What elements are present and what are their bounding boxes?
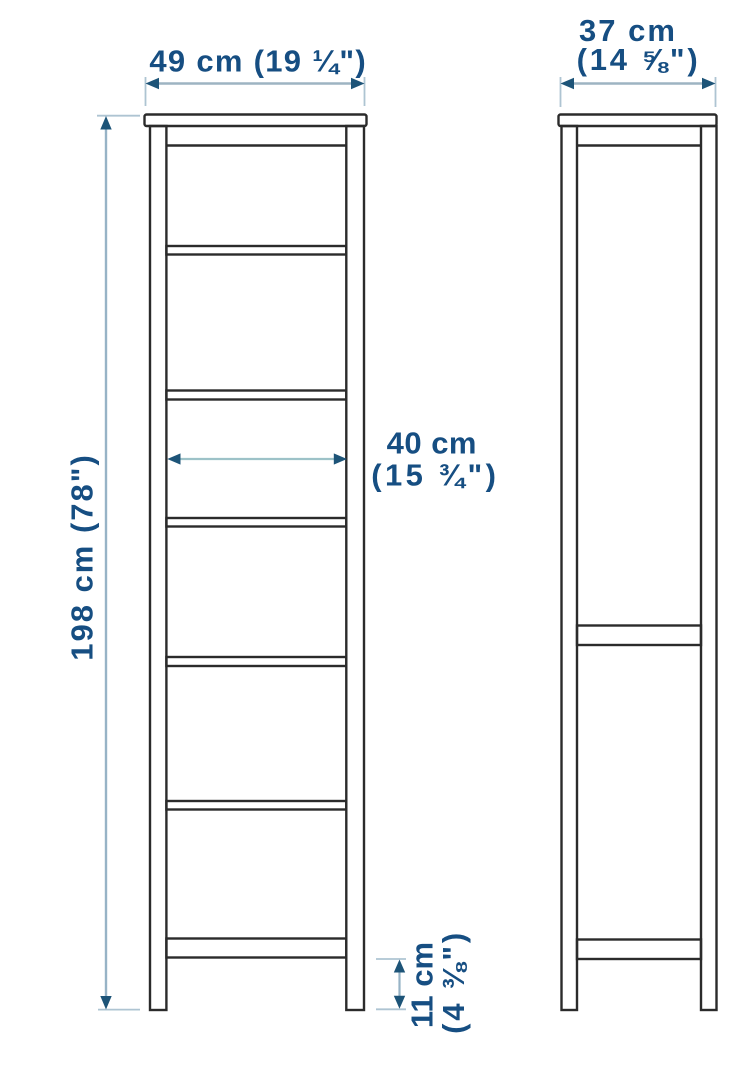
svg-text:(4 ⅜"): (4 ⅜") xyxy=(436,930,471,1034)
svg-text:40 cm: 40 cm xyxy=(387,426,477,461)
svg-text:198 cm (78"): 198 cm (78") xyxy=(65,453,100,661)
svg-text:(14 ⅝"): (14 ⅝") xyxy=(577,42,701,77)
svg-text:11 cm: 11 cm xyxy=(405,942,440,1028)
svg-text:(15 ¾"): (15 ¾") xyxy=(371,458,499,493)
svg-text:49 cm (19 ¼"): 49 cm (19 ¼") xyxy=(149,44,367,79)
